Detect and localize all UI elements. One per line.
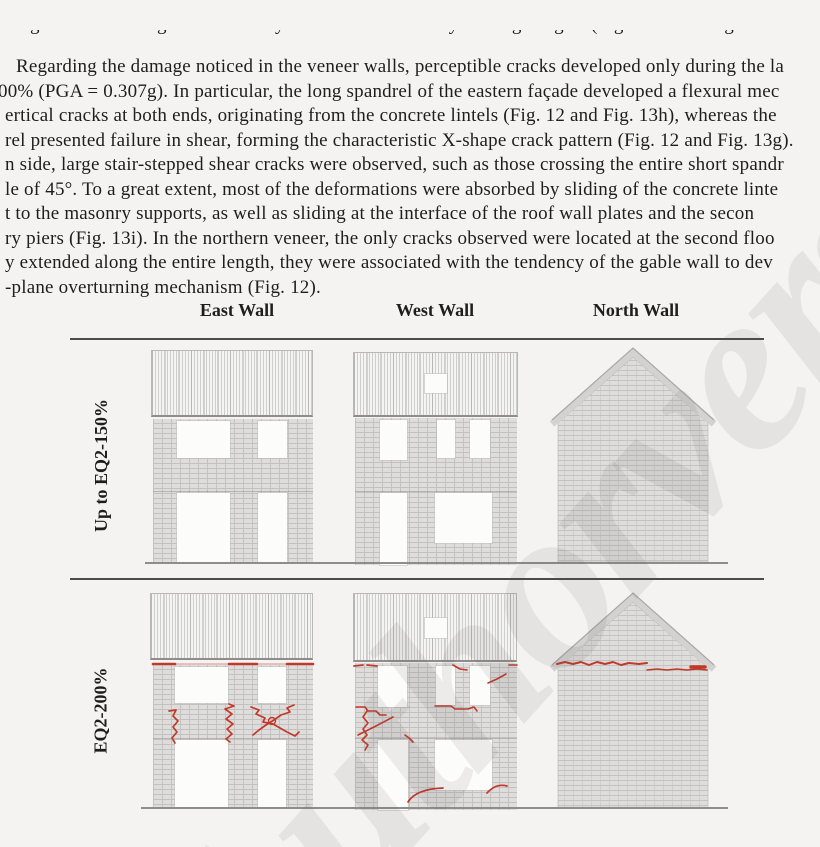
window-opening	[177, 421, 230, 458]
door-opening	[380, 493, 407, 565]
paragraph-line: ry piers (Fig. 13i). In the northern ven…	[0, 227, 820, 252]
column-header-west-wall: West Wall	[365, 300, 505, 321]
paragraph-line: 00% (PGA = 0.307g). In particular, the l…	[0, 80, 820, 105]
paragraph-line: y extended along the entire length, they…	[0, 251, 820, 276]
ground-line	[145, 562, 728, 564]
arc-crack	[408, 788, 443, 802]
interface-crack	[453, 665, 467, 670]
lintel-line	[153, 491, 313, 492]
figure-top-rule	[70, 338, 764, 340]
horizontal-sill-crack	[435, 706, 477, 711]
stair-stepped-crack	[358, 717, 393, 735]
paragraph-line: t to the masonry supports, as well as sl…	[0, 202, 820, 227]
corner-crack	[405, 735, 413, 742]
window-opening	[258, 421, 287, 458]
attic-window-opening	[425, 618, 447, 638]
paragraph-line: rel presented failure in shear, forming …	[0, 129, 820, 154]
paragraph-line: le of 45°. To a great extent, most of th…	[0, 178, 820, 203]
north-wall-gable-damaged	[551, 591, 715, 810]
west-wall-roof-band	[353, 352, 518, 417]
row-label-eq2-200: EQ2-200%	[88, 635, 114, 785]
figure-middle-rule	[70, 578, 764, 580]
door-opening	[177, 493, 230, 562]
stair-stepped-crack	[356, 707, 386, 715]
paragraph-line: ertical cracks at both ends, originating…	[0, 104, 820, 129]
column-header-north-wall: North Wall	[566, 300, 706, 321]
sliding-interface-crack	[354, 665, 377, 666]
column-header-east-wall: East Wall	[167, 300, 307, 321]
door-opening	[258, 493, 287, 562]
attic-window-opening	[425, 374, 447, 393]
row-label-text: EQ2-200%	[91, 667, 112, 753]
paragraph-line: n side, large stair-stepped shear cracks…	[0, 153, 820, 178]
ground-line	[141, 807, 728, 809]
row-label-eq2-150: Up to EQ2-150%	[88, 365, 114, 565]
vertical-flexural-crack	[169, 710, 178, 743]
clipped-text-line: g. Minor damage was already visible in t…	[0, 30, 780, 43]
row-label-text: Up to EQ2-150%	[91, 398, 112, 531]
east-wall-masonry	[153, 419, 313, 562]
east-wall-roof-band	[151, 350, 313, 417]
west-wall-masonry	[355, 418, 517, 565]
diagonal-crack	[488, 674, 506, 683]
lintel-line	[355, 491, 517, 492]
gable-masonry	[558, 357, 708, 562]
paragraph-line: Regarding the damage noticed in the vene…	[0, 55, 820, 80]
gable-masonry	[558, 602, 708, 808]
window-opening	[470, 420, 490, 458]
arc-crack	[487, 785, 507, 793]
west-wall-roof-band	[353, 593, 517, 662]
paper-page: g. Minor damage was already visible in t…	[0, 0, 820, 847]
clipped-text: g. Minor damage was already visible in t…	[0, 30, 780, 36]
window-opening	[435, 493, 492, 543]
west-wall-crack-overlay	[353, 661, 517, 813]
body-paragraph: Regarding the damage noticed in the vene…	[0, 55, 820, 300]
window-opening	[437, 420, 455, 458]
vertical-flexural-crack	[225, 704, 234, 742]
east-wall-crack-overlay	[153, 661, 313, 813]
north-wall-gable	[551, 346, 715, 564]
paragraph-line: -plane overturning mechanism (Fig. 12).	[0, 276, 820, 301]
window-opening	[380, 420, 407, 460]
east-wall-roof-band	[150, 593, 313, 660]
